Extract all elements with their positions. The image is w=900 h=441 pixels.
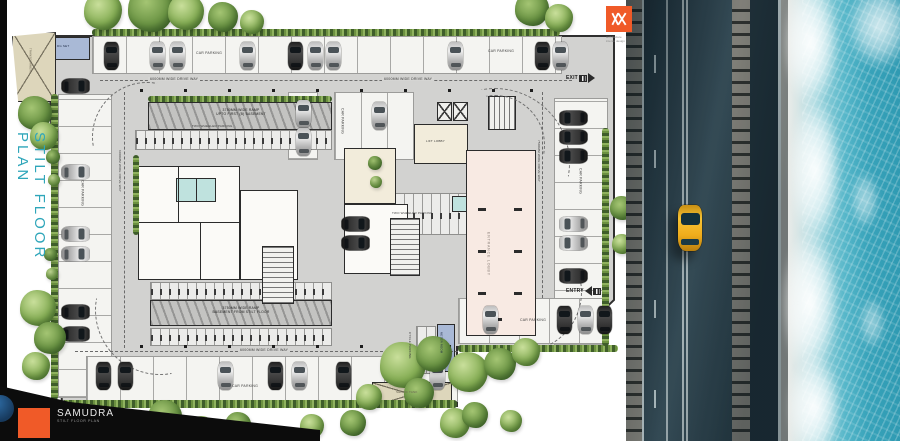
drive-way-label: 6000MM WIDE DRIVE WAY [238, 348, 290, 352]
parked-car [448, 42, 463, 70]
project-logo: SAMUDRA STILT FLOOR PLAN [18, 408, 114, 438]
hedge [133, 155, 139, 235]
entry-label: ENTRY [566, 288, 584, 294]
entrance-lobby [466, 150, 536, 336]
parked-car [240, 42, 255, 70]
tree [448, 352, 488, 392]
parked-car [292, 362, 307, 390]
exit-label: EXIT [566, 75, 578, 81]
parked-car [535, 42, 550, 70]
brochure-page: EXIT ENTRY CAR PARKINGCAR PARKINGCAR PAR… [0, 0, 900, 441]
parked-car [597, 306, 612, 334]
two-wheeler-label: TWO WHEELER PARKING [392, 212, 433, 216]
tree [22, 352, 50, 380]
parked-car [218, 362, 233, 390]
two-wheeler-label: TWO WHEELER PARKING [192, 125, 233, 129]
entry-arrow-tail [593, 288, 601, 295]
parked-car [372, 102, 387, 130]
parked-car [560, 130, 588, 145]
entry-arrow-icon [585, 286, 592, 296]
tree [48, 174, 60, 186]
xx-monogram-icon [609, 10, 629, 28]
project-logo-mark [18, 408, 50, 438]
car-parking-label: CAR PARKING [80, 180, 84, 206]
staircase [390, 218, 420, 276]
tree [240, 10, 264, 34]
column-marker [140, 89, 143, 92]
column-marker [492, 89, 495, 92]
drive-centerline [124, 92, 125, 348]
tree [356, 384, 382, 410]
parked-car [326, 42, 341, 70]
parked-car [308, 42, 323, 70]
exit-marker: EXIT [566, 73, 595, 83]
car-parking-label: CAR PARKING [520, 318, 546, 322]
parked-car [62, 79, 90, 94]
column-marker [360, 345, 363, 348]
project-name: SAMUDRA [57, 408, 114, 419]
tree [370, 176, 382, 188]
car-parking-label: CAR PARKING [340, 108, 344, 134]
parked-car [560, 111, 588, 126]
two-wheeler-stalls [150, 282, 332, 300]
car-parking-label: CAR PARKING [578, 168, 582, 194]
aerial-road-image [626, 0, 788, 441]
column-marker [140, 345, 143, 348]
transformer-yard [12, 32, 56, 102]
parked-car [170, 42, 185, 70]
column-marker [316, 345, 319, 348]
drive-way-label: 7500MM WIDE DRIVE WAY [536, 140, 540, 182]
parked-car [62, 305, 90, 320]
exit-arrow-icon [588, 73, 595, 83]
tree [34, 322, 66, 354]
ramp-upper-label: 3750MM WIDE RAMPUPTO FIRST (B) BASEMENT [196, 108, 286, 117]
parked-car [62, 227, 90, 242]
column-marker [228, 89, 231, 92]
column-marker [478, 292, 486, 295]
exit-arrow-tail [579, 75, 587, 82]
tree [208, 2, 238, 32]
stilt-floor-plan: EXIT ENTRY CAR PARKINGCAR PARKINGCAR PAR… [0, 0, 640, 441]
ocean-image [788, 0, 900, 441]
tree [512, 338, 540, 366]
tree [340, 410, 366, 436]
project-subtitle: STILT FLOOR PLAN [57, 419, 114, 423]
parked-car [342, 217, 370, 232]
yellow-car [678, 205, 702, 251]
entrance-lobby-label: ENTRANCE LOBBY [486, 232, 490, 276]
parked-car [268, 362, 283, 390]
parked-car [560, 217, 588, 232]
column-marker [514, 250, 522, 253]
parked-car [560, 269, 588, 284]
parked-car [553, 42, 568, 70]
meter-room-label: METER ROOM [439, 332, 442, 353]
surf-foam [850, 170, 880, 230]
parked-car [342, 236, 370, 251]
column-marker [478, 208, 486, 211]
drive-way-label: 6000MM WIDE DRIVE WAY [148, 77, 200, 81]
car-parking-label: CAR PARKING [488, 49, 514, 53]
parked-car [288, 42, 303, 70]
wall [138, 222, 240, 223]
hedge [62, 400, 457, 408]
column-marker [478, 250, 486, 253]
column-marker [404, 89, 407, 92]
column-marker [514, 208, 522, 211]
wall [196, 178, 197, 202]
surf-foam [788, 95, 842, 245]
page-left-edge [0, 0, 7, 441]
tree [416, 336, 452, 372]
parked-car [296, 100, 311, 128]
tree [46, 150, 60, 164]
lift-lobby [414, 124, 468, 164]
car-parking-label: CAR PARKING [232, 384, 258, 388]
architect-logo-mark [606, 6, 632, 32]
wall [200, 222, 201, 280]
lift-shaft [453, 102, 468, 121]
parked-car [296, 128, 311, 156]
septic-tank-label: SEPTIC TANK [396, 391, 418, 395]
staircase [262, 246, 294, 304]
column-marker [448, 89, 451, 92]
parked-car [483, 306, 498, 334]
column-marker [360, 89, 363, 92]
drive-way-label: 6000MM WIDE DRIVE WAY [117, 150, 121, 192]
parked-car [578, 306, 593, 334]
column-marker [184, 345, 187, 348]
column-marker [228, 345, 231, 348]
column-marker [272, 89, 275, 92]
ramp-lower-label: 3750MM WIDE RAMPBASEMENT FROM STILT FLOO… [196, 306, 286, 315]
tree [462, 402, 488, 428]
parked-car [557, 306, 572, 334]
cycle-parking-label: CYCLE PARKING [407, 332, 411, 359]
lift-lobby-label: LIFT LOBBY [426, 140, 445, 144]
tree [500, 410, 522, 432]
parked-car [150, 42, 165, 70]
parked-car [62, 165, 90, 180]
road-tint [626, 0, 788, 441]
architect-tagline-2: interior design [606, 39, 636, 43]
two-wheeler-stalls [150, 328, 332, 346]
parked-car [118, 362, 133, 390]
column-marker [530, 89, 533, 92]
tree [545, 4, 573, 32]
tree [368, 156, 382, 170]
lift-shaft [437, 102, 452, 121]
page-title: STILT FLOOR PLAN [14, 132, 48, 318]
entry-marker: ENTRY [566, 286, 601, 296]
parked-car [96, 362, 111, 390]
column-marker [316, 89, 319, 92]
parked-car [560, 236, 588, 251]
surf-foam [858, 295, 886, 350]
wall [178, 166, 179, 222]
hedge [92, 29, 560, 36]
parked-car [560, 149, 588, 164]
column-marker [514, 292, 522, 295]
column-marker [184, 89, 187, 92]
parked-car [336, 362, 351, 390]
drive-way-label: 6000MM WIDE DRIVE WAY [382, 77, 434, 81]
architect-logo: architecture interior design [606, 6, 636, 43]
parked-car [62, 247, 90, 262]
dg-set-label: DG SET [57, 45, 69, 49]
car-parking-label: CAR PARKING [196, 51, 222, 55]
parked-car [104, 42, 119, 70]
transformer-label: TRANSFORMER [28, 48, 31, 72]
